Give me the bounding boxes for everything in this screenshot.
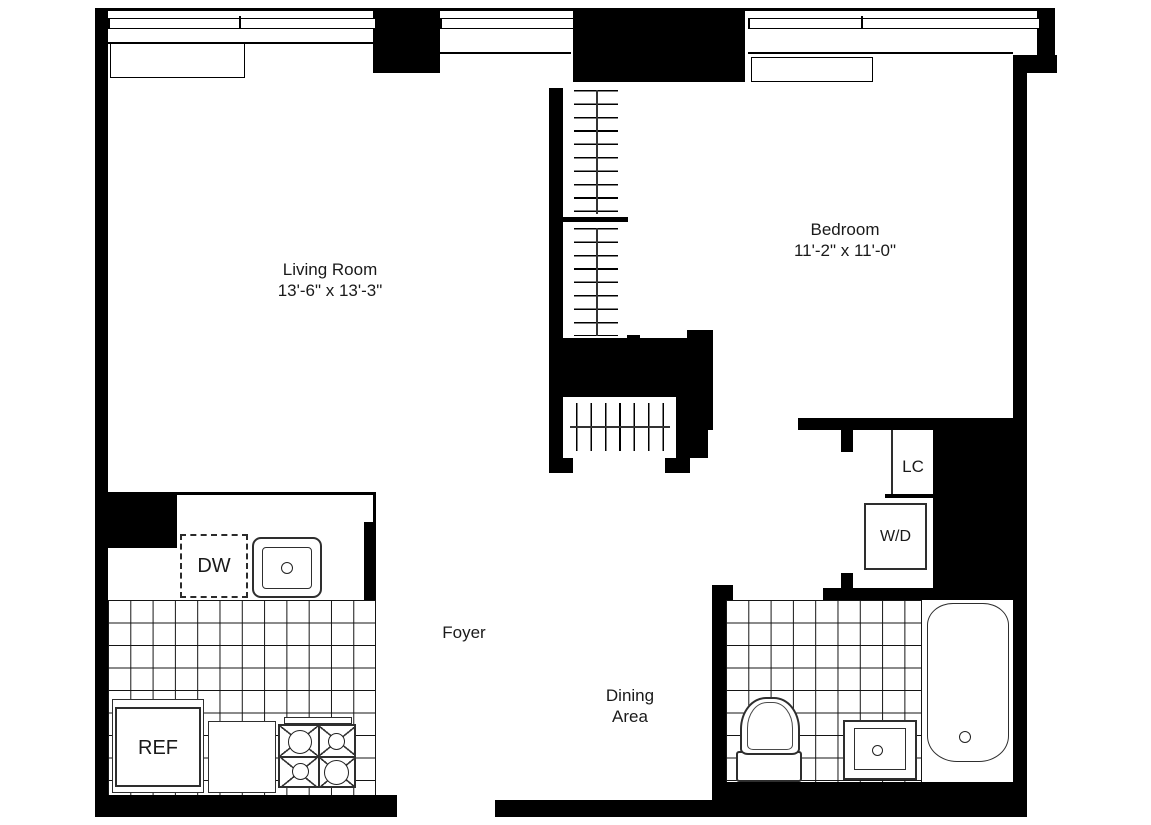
wall-bath-left [712, 585, 726, 795]
wall-bedroom-door-stub [841, 430, 853, 452]
foyer-coat-closet [570, 403, 670, 451]
wall-left [95, 8, 108, 817]
dining-area-label: Dining Area [580, 685, 680, 728]
window-mullion [239, 16, 241, 29]
kitchen-counter [208, 721, 276, 793]
bedroom-label: Bedroom 11'-2" x 11'-0" [745, 219, 945, 262]
wall-counter-right-line [373, 495, 376, 522]
dining-area-line1: Dining [580, 685, 680, 706]
linen-closet-label: LC [893, 457, 933, 477]
wall-bath-left-jamb [726, 585, 733, 600]
living-room-name: Living Room [230, 259, 430, 280]
foyer-label: Foyer [414, 622, 514, 643]
wall-closet-divider [563, 217, 628, 222]
bathtub-drain [959, 731, 971, 743]
closet-rod [596, 90, 598, 214]
burner [292, 763, 309, 780]
floor-plan: DW REF LC W/D Living Room 13'-6" x 13'-3… [0, 0, 1151, 825]
wall-bath-top [823, 588, 937, 600]
window-sill-bedroom [748, 52, 1013, 54]
wall-closet-jamb-top [627, 72, 643, 79]
window-mullion [861, 16, 863, 29]
wall-closet-left [549, 88, 563, 342]
wall-coat-closet-right [676, 397, 708, 458]
closet-rod [570, 426, 670, 428]
wall-counter-right-block [364, 522, 376, 600]
living-room-dims: 13'-6" x 13'-3" [230, 280, 430, 301]
radiator-living [110, 43, 245, 78]
wall-right-upper [1013, 55, 1027, 421]
bathroom-sink-drain [872, 745, 883, 756]
dishwasher-label: DW [197, 555, 230, 578]
toilet-bowl [747, 702, 793, 750]
dining-area-line2: Area [580, 706, 680, 727]
stove-back-edge [284, 717, 352, 724]
wall-coat-door-stub-left [549, 458, 573, 473]
burner [288, 730, 312, 754]
radiator-bedroom [751, 57, 873, 82]
window-bedroom [748, 18, 1041, 29]
bedroom-closet-lower [566, 228, 628, 336]
wall-mid-mass [549, 338, 708, 397]
refrigerator-label: REF [115, 737, 201, 760]
wall-counter-top-line [177, 492, 376, 495]
wall-bottom-left [95, 795, 397, 817]
wall-coat-door-stub-right [665, 458, 690, 473]
wall-right-mass [933, 430, 1027, 600]
foyer-name: Foyer [414, 622, 514, 643]
wall-bedroom-bottom [798, 418, 1027, 430]
bedroom-name: Bedroom [745, 219, 945, 240]
bedroom-closet-upper [566, 90, 628, 214]
dishwasher: DW [180, 534, 248, 598]
living-room-label: Living Room 13'-6" x 13'-3" [230, 259, 430, 302]
washer-dryer-label: W/D [864, 528, 927, 546]
stove [278, 724, 356, 788]
wall-core-block [573, 8, 745, 82]
window-living-left [108, 18, 377, 29]
burner [324, 760, 349, 785]
wall-bath-bottom [712, 782, 1027, 817]
kitchen-sink-drain [281, 562, 293, 574]
window-sill-living-right [440, 52, 571, 54]
wall-wd-stub [841, 573, 853, 588]
closet-rod [596, 228, 598, 336]
burner [328, 733, 345, 750]
wall-lc-wd-divider [885, 494, 933, 498]
wall-kitchen-block [108, 492, 177, 548]
bedroom-dims: 11'-2" x 11'-0" [745, 240, 945, 261]
toilet-tank [736, 751, 802, 782]
wall-top-column [373, 8, 440, 73]
window-living-right [440, 18, 575, 29]
